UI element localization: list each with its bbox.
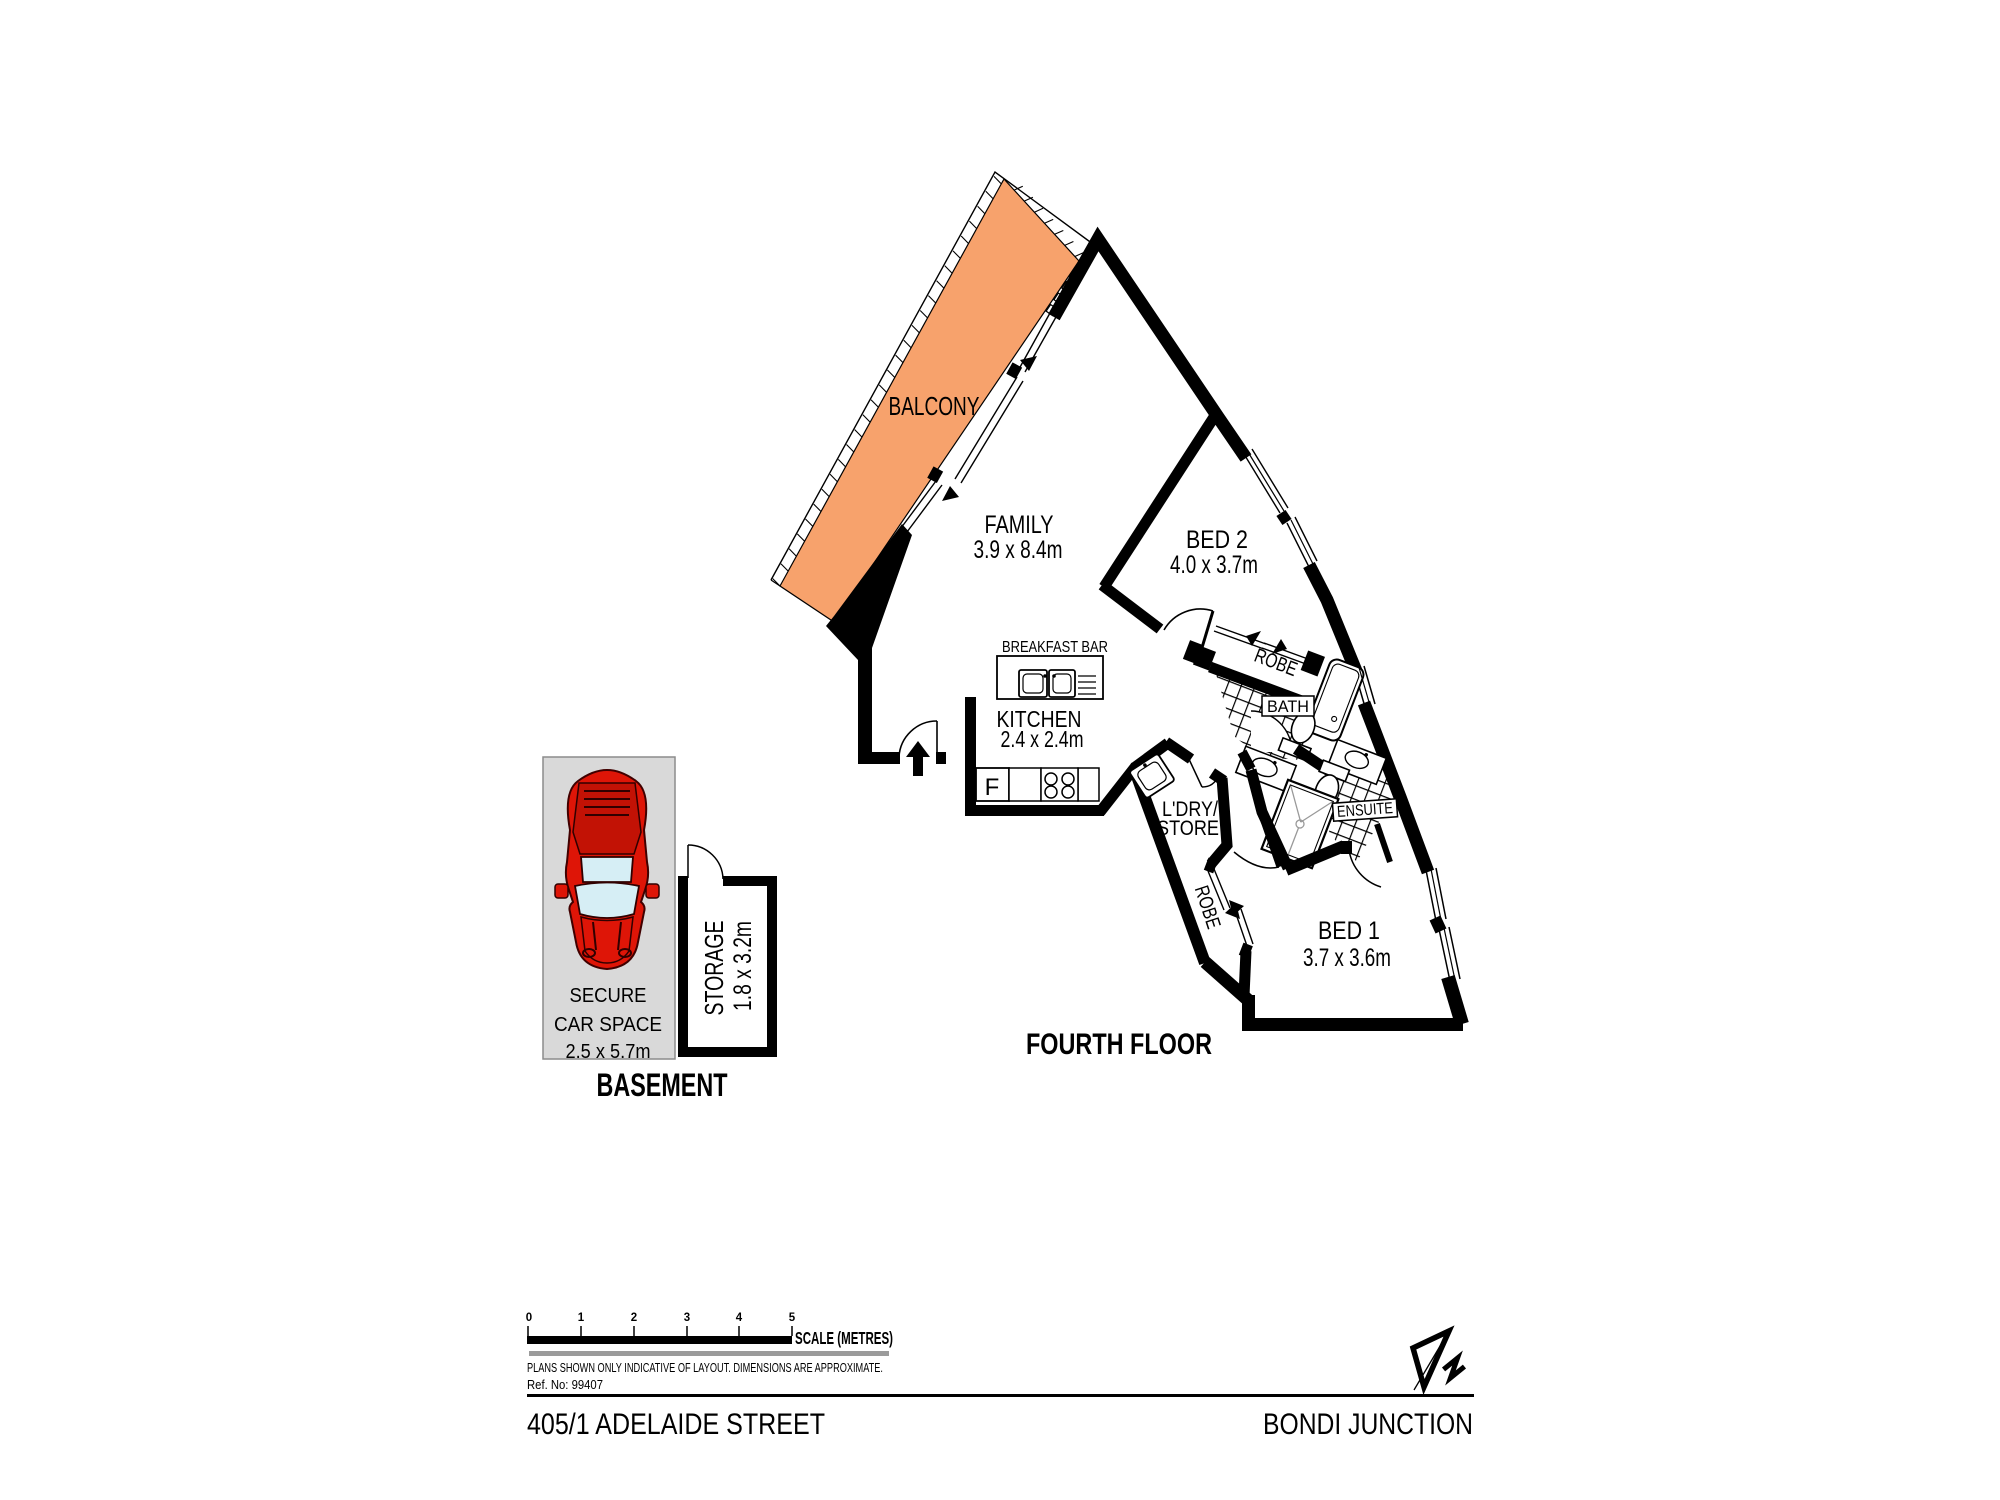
svg-text:PLANS SHOWN ONLY INDICATIVE OF: PLANS SHOWN ONLY INDICATIVE OF LAYOUT. D… xyxy=(527,1361,883,1375)
svg-text:2.4 x 2.4m: 2.4 x 2.4m xyxy=(1001,726,1084,752)
svg-text:BASEMENT: BASEMENT xyxy=(597,1067,728,1103)
svg-text:SECURE: SECURE xyxy=(570,985,647,1007)
svg-text:F: F xyxy=(985,774,1000,801)
svg-text:BATH: BATH xyxy=(1267,697,1309,716)
svg-text:SCALE (METRES): SCALE (METRES) xyxy=(795,1328,893,1348)
svg-text:2.5 x 5.7m: 2.5 x 5.7m xyxy=(566,1041,651,1063)
svg-text:5: 5 xyxy=(789,1312,796,1324)
svg-text:BALCONY: BALCONY xyxy=(889,391,980,421)
svg-text:0: 0 xyxy=(526,1312,532,1324)
svg-text:2: 2 xyxy=(631,1312,637,1324)
svg-text:BREAKFAST BAR: BREAKFAST BAR xyxy=(1002,639,1108,656)
svg-text:CAR SPACE: CAR SPACE xyxy=(554,1014,662,1036)
svg-text:FOURTH FLOOR: FOURTH FLOOR xyxy=(1026,1028,1212,1061)
svg-text:3.9 x 8.4m: 3.9 x 8.4m xyxy=(974,536,1063,564)
svg-text:STORE: STORE xyxy=(1157,817,1219,840)
svg-text:BONDI JUNCTION: BONDI JUNCTION xyxy=(1263,1408,1473,1441)
svg-text:3.7 x 3.6m: 3.7 x 3.6m xyxy=(1303,944,1391,972)
svg-text:1: 1 xyxy=(578,1312,585,1324)
svg-text:STORAGE: STORAGE xyxy=(699,921,729,1016)
svg-text:BED 2: BED 2 xyxy=(1186,526,1248,554)
svg-text:BED 1: BED 1 xyxy=(1318,917,1380,945)
svg-text:Ref. No: 99407: Ref. No: 99407 xyxy=(527,1378,603,1392)
svg-text:405/1 ADELAIDE STREET: 405/1 ADELAIDE STREET xyxy=(527,1408,825,1441)
svg-text:4.0 x 3.7m: 4.0 x 3.7m xyxy=(1170,551,1258,579)
svg-text:FAMILY: FAMILY xyxy=(985,511,1054,539)
svg-text:3: 3 xyxy=(684,1312,690,1324)
svg-text:4: 4 xyxy=(736,1312,743,1324)
svg-text:1.8 x 3.2m: 1.8 x 3.2m xyxy=(729,921,757,1011)
